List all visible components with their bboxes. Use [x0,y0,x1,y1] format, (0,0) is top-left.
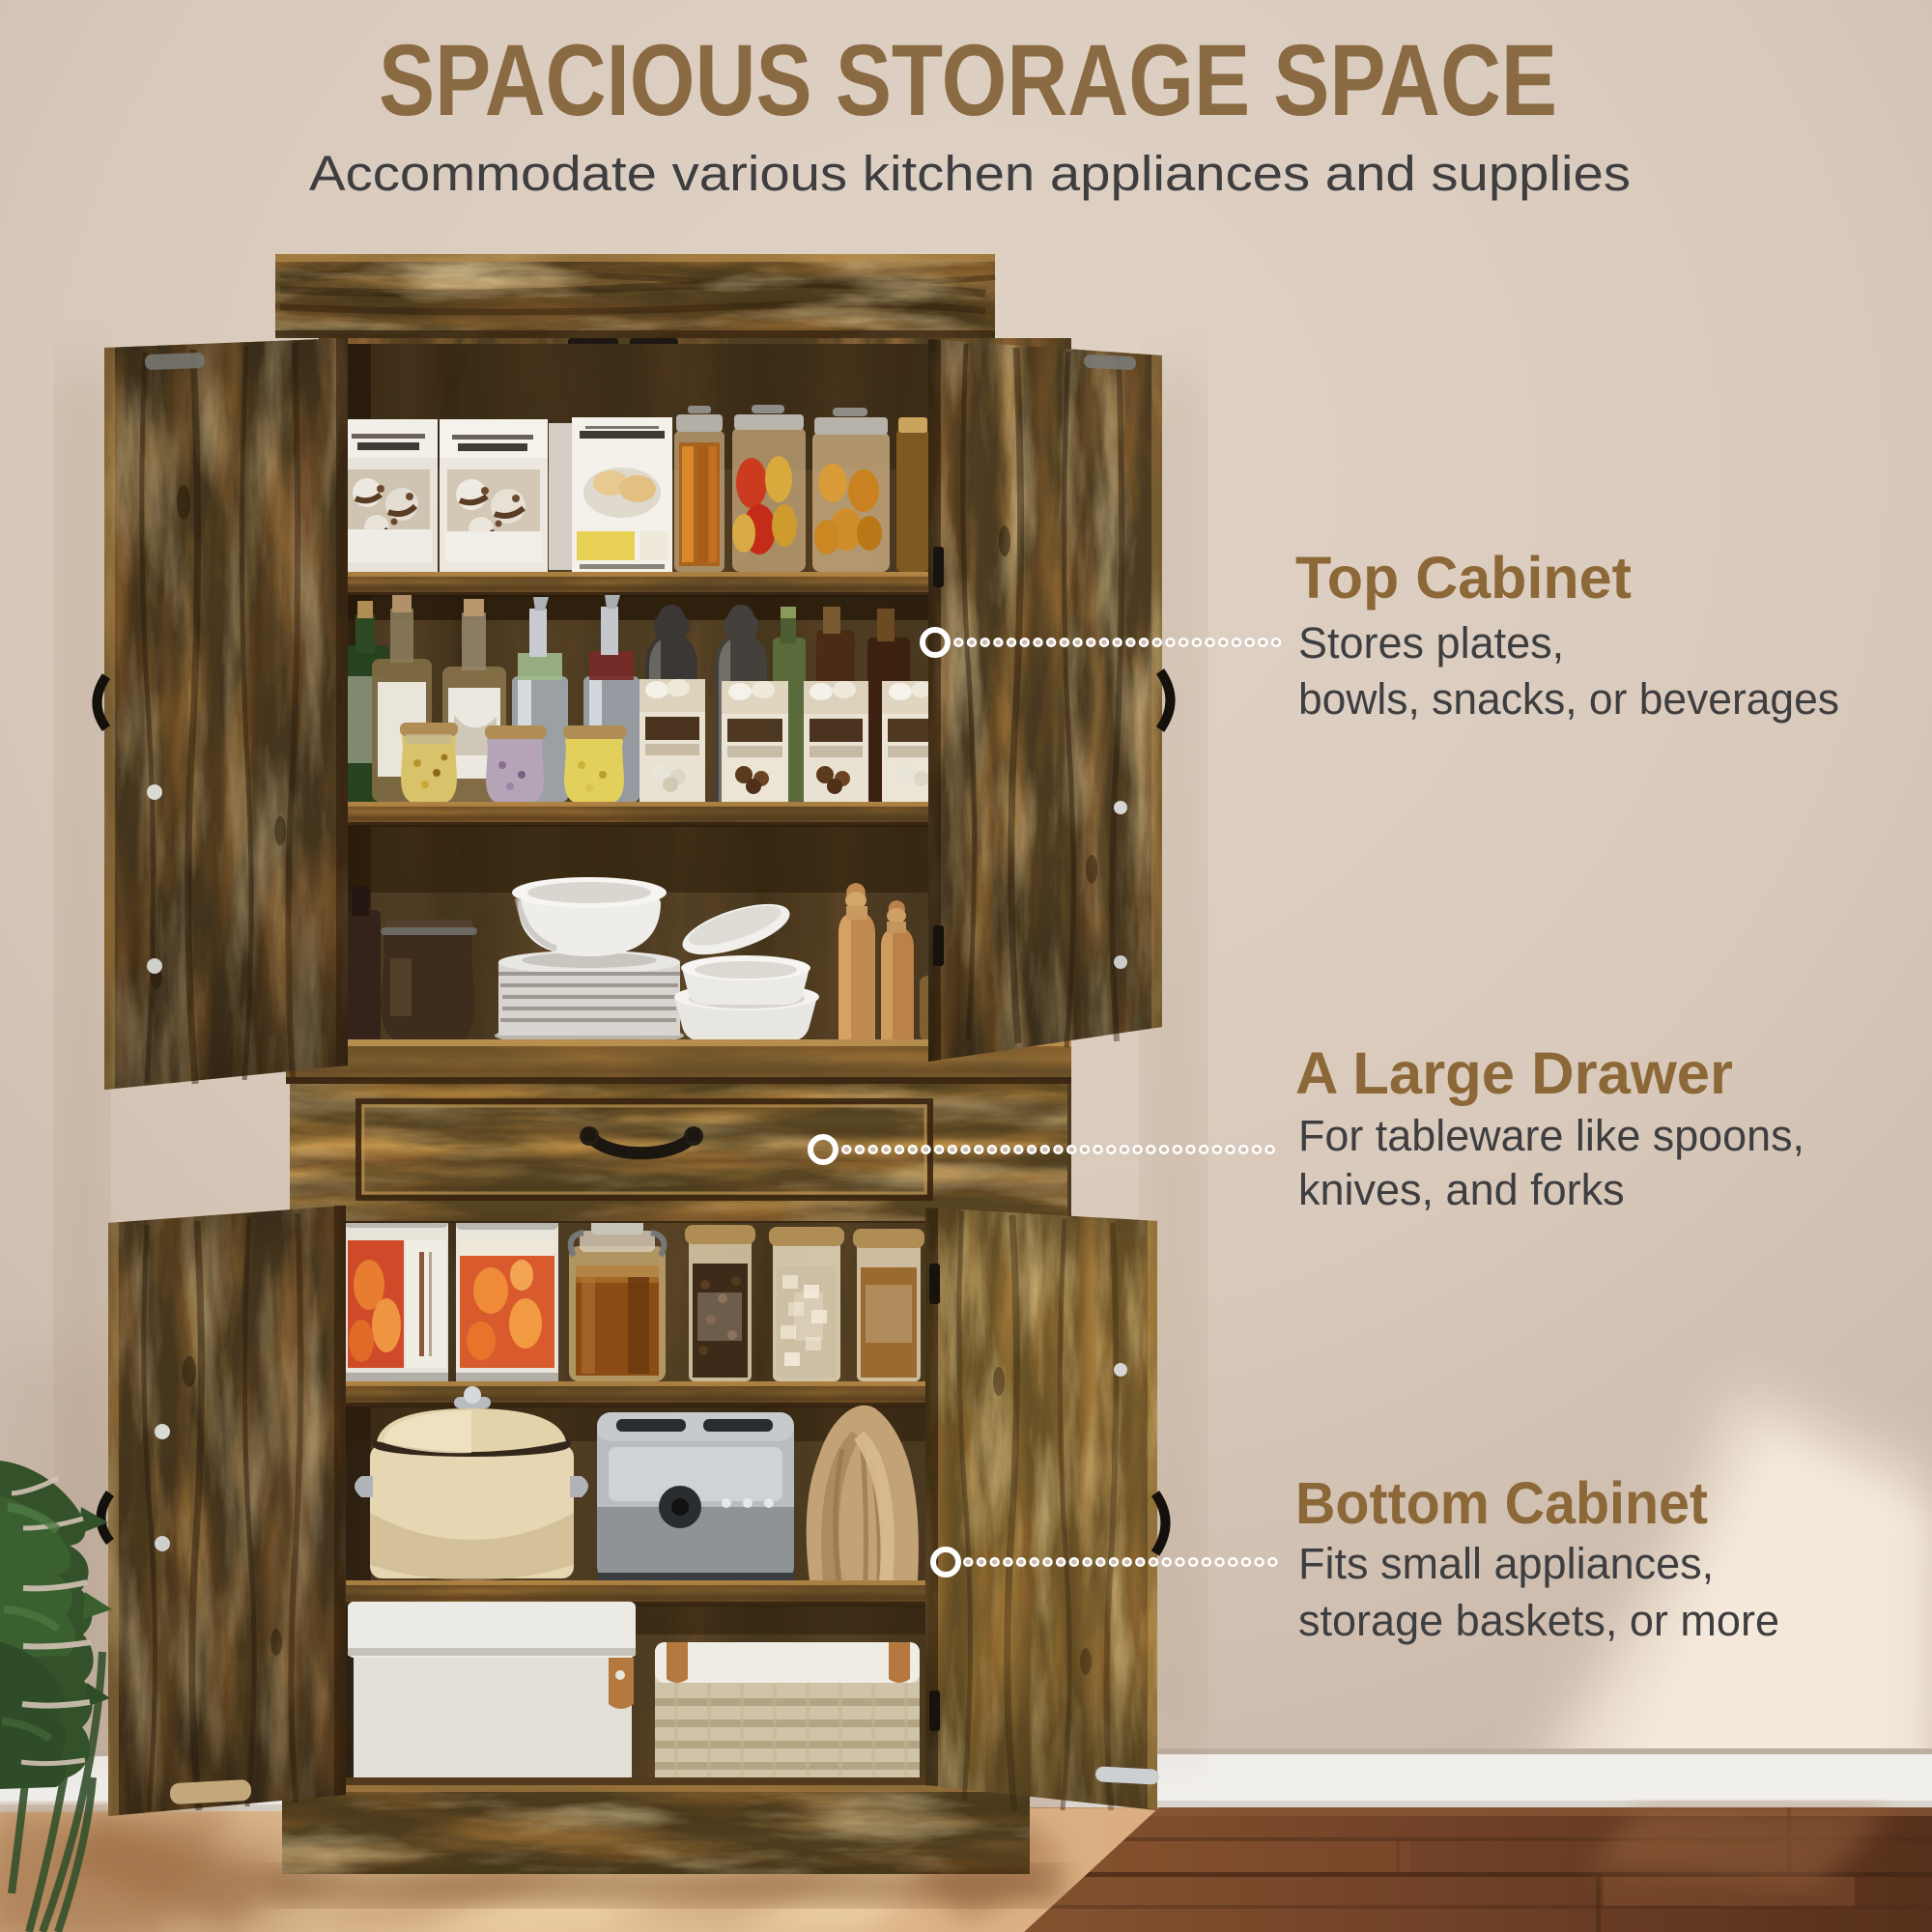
svg-text:Bottom Cabinet: Bottom Cabinet [1295,1470,1708,1536]
svg-text:Fits small appliances,: Fits small appliances, [1298,1539,1714,1588]
svg-text:A Large Drawer: A Large Drawer [1295,1040,1733,1106]
svg-text:knives, and forks: knives, and forks [1298,1165,1625,1214]
svg-text:SPACIOUS STORAGE SPACE: SPACIOUS STORAGE SPACE [379,24,1557,137]
svg-text:storage baskets, or more: storage baskets, or more [1298,1596,1779,1645]
svg-text:Top Cabinet: Top Cabinet [1295,545,1632,611]
svg-text:Accommodate various kitchen ap: Accommodate various kitchen appliances a… [309,146,1631,201]
svg-text:bowls, snacks, or beverages: bowls, snacks, or beverages [1298,674,1839,724]
svg-text:For tableware like spoons,: For tableware like spoons, [1298,1111,1804,1160]
svg-text:Stores plates,: Stores plates, [1298,618,1564,668]
